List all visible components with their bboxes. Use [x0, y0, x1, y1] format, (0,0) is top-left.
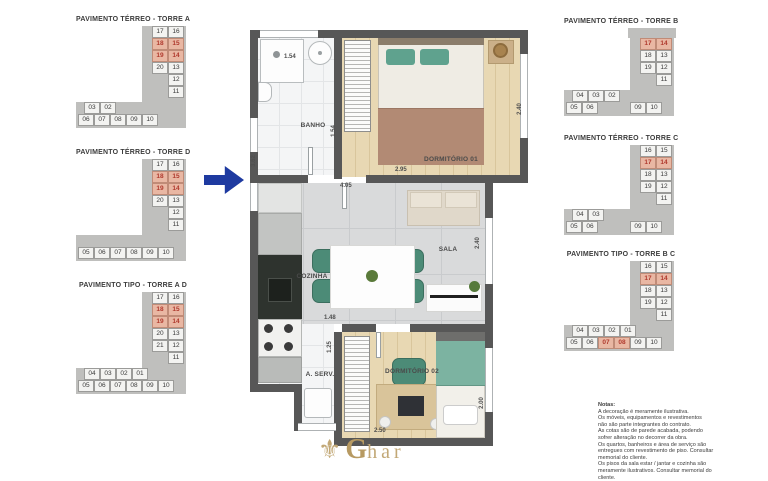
room-label-dormitorio2: DORMITÓRIO 02	[364, 368, 460, 375]
service-door	[298, 423, 336, 431]
tv	[430, 295, 478, 298]
washing-machine	[258, 357, 302, 383]
dim-living-width: 4.05	[340, 183, 352, 189]
laundry-tank	[304, 388, 332, 418]
unit-12: 12	[656, 297, 672, 309]
unit-06: 06	[94, 380, 110, 392]
wardrobe-dorm2	[344, 336, 370, 432]
burner	[264, 342, 273, 351]
unit-13: 13	[656, 169, 672, 181]
unit-12: 12	[168, 340, 184, 352]
window	[485, 218, 493, 284]
keyplan-units-map: 16151714181319121104030201050607080910	[564, 261, 678, 353]
dim-dorm1-width: 2.95	[395, 167, 407, 173]
shower-head	[273, 51, 280, 58]
unit-03: 03	[588, 90, 604, 102]
unit-09: 09	[630, 102, 646, 114]
unit-11: 11	[656, 74, 672, 86]
unit-16: 16	[168, 159, 184, 171]
unit-10: 10	[158, 380, 174, 392]
unit-20: 20	[152, 62, 168, 74]
toilet	[258, 82, 272, 102]
unit-07: 07	[94, 114, 110, 126]
unit-09: 09	[630, 221, 646, 233]
unit-16: 16	[168, 26, 184, 38]
keyplan-tipo-torre-b-c: PAVIMENTO TIPO - TORRE B C 1615171418131…	[564, 251, 678, 353]
unit-04: 04	[572, 325, 588, 337]
keyplan-terreo-torre-c: PAVIMENTO TÉRREO - TORRE C 1615171418131…	[564, 135, 678, 237]
logo-text: har	[367, 441, 405, 464]
pillow-teal	[420, 49, 449, 65]
unit-15: 15	[656, 145, 672, 157]
locator-arrow-icon	[204, 166, 244, 194]
unit-15: 15	[656, 261, 672, 273]
shower-box	[260, 39, 304, 83]
unit-11: 11	[656, 193, 672, 205]
unit-09: 09	[142, 380, 158, 392]
unit-17: 17	[152, 292, 168, 304]
keyplan-tipo-torre-a-d: PAVIMENTO TIPO - TORRE A D 1716181519142…	[76, 282, 190, 396]
unit-08: 08	[614, 337, 630, 349]
dorm2-door-leaf	[376, 332, 381, 358]
dim-dorm1-depth: 2.40	[517, 103, 523, 115]
burner	[284, 324, 293, 333]
keyplan-units-map: 17161815191420131211050607080910	[76, 159, 190, 263]
unit-02: 02	[116, 368, 132, 380]
unit-02: 02	[100, 102, 116, 114]
wall	[366, 175, 528, 183]
unit-06: 06	[78, 114, 94, 126]
keyplan-terreo-torre-d: PAVIMENTO TÉRREO - TORRE D 1716181519142…	[76, 149, 190, 263]
keyplan-title: PAVIMENTO TÉRREO - TORRE C	[564, 135, 678, 142]
single-bed-pillow	[443, 405, 478, 425]
unit-02: 02	[604, 325, 620, 337]
wall	[342, 324, 376, 332]
unit-17: 17	[152, 159, 168, 171]
unit-04: 04	[572, 90, 588, 102]
unit-17: 17	[640, 157, 656, 169]
unit-04: 04	[572, 209, 588, 221]
unit-10: 10	[646, 102, 662, 114]
unit-11: 11	[168, 219, 184, 231]
basin-drain	[318, 51, 322, 55]
unit-11: 11	[168, 86, 184, 98]
entrance-door	[250, 183, 258, 211]
sofa-cushion	[410, 192, 442, 208]
unit-14: 14	[168, 183, 184, 195]
kitchen-cabinet	[258, 183, 302, 213]
unit-13: 13	[656, 285, 672, 297]
window	[260, 30, 318, 38]
single-bed-head	[436, 332, 485, 341]
keyplan-title: PAVIMENTO TÉRREO - TORRE A	[76, 16, 190, 23]
banho-door-leaf	[308, 147, 313, 175]
unit-11: 11	[656, 309, 672, 321]
keyplan-terreo-torre-b: PAVIMENTO TÉRREO - TORRE B 1714181319121…	[564, 18, 678, 118]
unit-06: 06	[582, 337, 598, 349]
unit-06: 06	[582, 102, 598, 114]
unit-09: 09	[126, 114, 142, 126]
unit-13: 13	[168, 62, 184, 74]
dim-banho-depth: 1.54	[331, 125, 337, 137]
wall	[410, 324, 485, 332]
wardrobe-dorm1	[344, 40, 371, 132]
kitchen-sink	[268, 278, 292, 302]
unit-18: 18	[152, 38, 168, 50]
unit-15: 15	[168, 38, 184, 50]
keyplan-title: PAVIMENTO TIPO - TORRE A D	[76, 282, 190, 289]
unit-18: 18	[152, 304, 168, 316]
unit-10: 10	[158, 247, 174, 259]
unit-14: 14	[656, 273, 672, 285]
unit-16: 16	[640, 145, 656, 157]
table-lamp	[493, 43, 508, 58]
keyplan-terreo-torre-a: PAVIMENTO TÉRREO - TORRE A 1716181519142…	[76, 16, 190, 130]
unit-16: 16	[168, 292, 184, 304]
unit-06: 06	[582, 221, 598, 233]
unit-10: 10	[646, 337, 662, 349]
dim-table-width: 1.48	[324, 315, 336, 321]
unit-04: 04	[84, 368, 100, 380]
room-label-cozinha: COZINHA	[282, 273, 342, 280]
unit-03: 03	[588, 209, 604, 221]
unit-08: 08	[126, 247, 142, 259]
unit-16: 16	[640, 261, 656, 273]
unit-12: 12	[656, 181, 672, 193]
unit-18: 18	[640, 285, 656, 297]
keyplan-units-map: 1716181519142013211211040302010506070809…	[76, 292, 190, 396]
wall	[334, 30, 342, 179]
keyplan-units-map: 1714181319121104030205060910	[564, 28, 678, 118]
unit-14: 14	[168, 316, 184, 328]
unit-17: 17	[640, 38, 656, 50]
apartment-floorplan: BANHO DORMITÓRIO 01 COZINHA SALA A. SERV…	[246, 26, 536, 446]
unit-11: 11	[168, 352, 184, 364]
unit-20: 20	[152, 195, 168, 207]
lion-ornament-icon: ⚜	[318, 437, 341, 463]
unit-18: 18	[640, 50, 656, 62]
unit-08: 08	[126, 380, 142, 392]
room-label-banho: BANHO	[290, 122, 336, 129]
sofa-cushion	[445, 192, 477, 208]
unit-02: 02	[604, 90, 620, 102]
window	[485, 348, 493, 412]
unit-13: 13	[656, 50, 672, 62]
unit-01: 01	[620, 325, 636, 337]
unit-07: 07	[598, 337, 614, 349]
unit-15: 15	[168, 304, 184, 316]
keyplan-title: PAVIMENTO TIPO - TORRE B C	[564, 251, 678, 258]
stool	[379, 416, 391, 428]
unit-06: 06	[94, 247, 110, 259]
unit-12: 12	[168, 207, 184, 219]
dim-banho-width: 1.54	[284, 54, 296, 60]
logo-initial: G	[345, 436, 367, 464]
unit-14: 14	[656, 157, 672, 169]
unit-09: 09	[142, 247, 158, 259]
unit-09: 09	[630, 337, 646, 349]
unit-05: 05	[78, 247, 94, 259]
plant	[469, 281, 480, 292]
unit-19: 19	[640, 297, 656, 309]
window	[250, 118, 258, 152]
unit-17: 17	[152, 26, 168, 38]
unit-03: 03	[588, 325, 604, 337]
pillow-teal	[386, 49, 415, 65]
legal-notes: Notas: A decoração é meramente ilustrati…	[598, 402, 763, 481]
wall	[250, 30, 258, 392]
burner	[284, 342, 293, 351]
dim-kitchen-depth: 3.62	[251, 155, 257, 167]
unit-19: 19	[640, 62, 656, 74]
burner	[264, 324, 273, 333]
bed-headboard	[378, 38, 484, 45]
keyplan-units-map: 1716181519142013121103020607080910	[76, 26, 190, 130]
unit-12: 12	[168, 74, 184, 86]
unit-13: 13	[168, 328, 184, 340]
window	[520, 54, 528, 138]
unit-14: 14	[656, 38, 672, 50]
single-bed-blanket	[436, 341, 485, 386]
ghar-logo: ⚜ G har	[318, 436, 405, 464]
room-label-sala: SALA	[428, 246, 468, 253]
unit-17: 17	[640, 273, 656, 285]
unit-20: 20	[152, 328, 168, 340]
dim-dorm2-depth: 2.00	[479, 397, 485, 409]
dim-serv-depth: 1.25	[327, 341, 333, 353]
room-label-aserv: A. SERV.	[298, 371, 342, 378]
unit-05: 05	[566, 337, 582, 349]
unit-19: 19	[152, 50, 168, 62]
laptop	[398, 396, 424, 416]
dim-sala-depth: 2.40	[475, 237, 481, 249]
room-label-dormitorio1: DORMITÓRIO 01	[396, 156, 506, 163]
unit-19: 19	[640, 181, 656, 193]
unit-18: 18	[640, 169, 656, 181]
unit-03: 03	[100, 368, 116, 380]
unit-05: 05	[566, 221, 582, 233]
unit-14: 14	[168, 50, 184, 62]
notes-title: Notas:	[598, 402, 763, 409]
unit-08: 08	[110, 114, 126, 126]
unit-21: 21	[152, 340, 168, 352]
unit-13: 13	[168, 195, 184, 207]
unit-18: 18	[152, 171, 168, 183]
unit-05: 05	[566, 102, 582, 114]
unit-19: 19	[152, 183, 168, 195]
unit-03: 03	[84, 102, 100, 114]
keyplan-title: PAVIMENTO TÉRREO - TORRE D	[76, 149, 190, 156]
keyplan-units-map: 161517141813191211040305060910	[564, 145, 678, 237]
wall	[250, 175, 308, 183]
keyplan-title: PAVIMENTO TÉRREO - TORRE B	[564, 18, 678, 25]
unit-12: 12	[656, 62, 672, 74]
kitchen-counter	[258, 213, 302, 255]
table-plant	[366, 270, 378, 282]
dim-dorm2-width: 2.50	[374, 428, 386, 434]
unit-10: 10	[142, 114, 158, 126]
unit-07: 07	[110, 380, 126, 392]
unit-19: 19	[152, 316, 168, 328]
notes-body: A decoração é meramente ilustrativa. Os …	[598, 409, 763, 481]
unit-10: 10	[646, 221, 662, 233]
unit-15: 15	[168, 171, 184, 183]
unit-01: 01	[132, 368, 148, 380]
unit-05: 05	[78, 380, 94, 392]
unit-07: 07	[110, 247, 126, 259]
